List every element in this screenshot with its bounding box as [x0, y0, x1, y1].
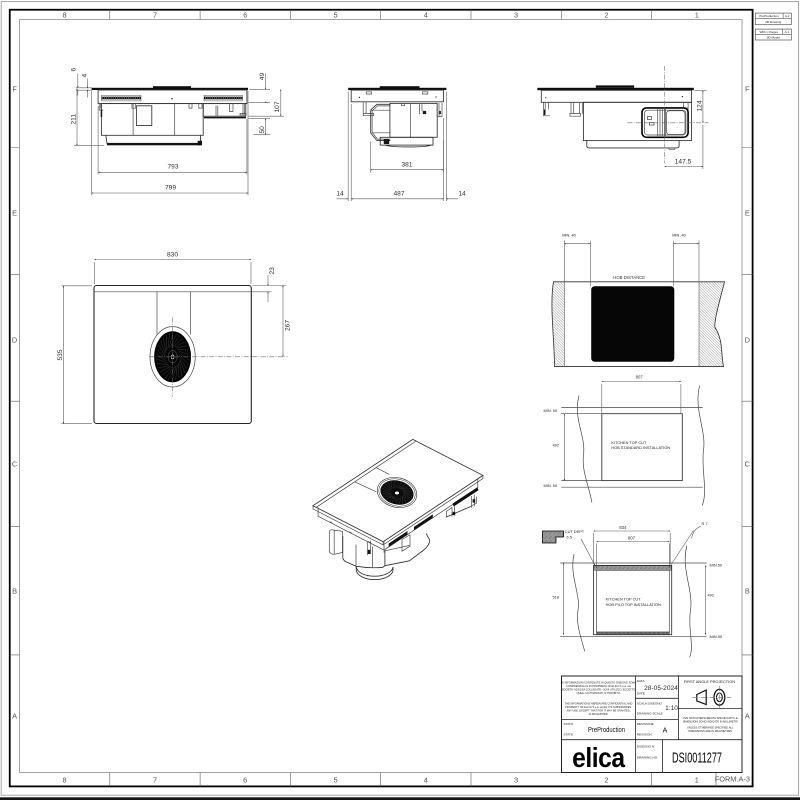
svg-text:DRAWING NO.: DRAWING NO. — [637, 756, 658, 760]
svg-text:LE INFORMAZIONI CONTENUTE IN Q: LE INFORMAZIONI CONTENUTE IN QUESTO DISE… — [561, 681, 637, 685]
svg-text:E: E — [745, 209, 750, 218]
svg-text:MIN. 40: MIN. 40 — [562, 233, 576, 238]
svg-text:CUT DEPT: CUT DEPT — [565, 529, 585, 534]
svg-text:793: 793 — [167, 164, 178, 171]
svg-text:QUELLI AUTORIZZATI, E' PROIBIT: QUELLI AUTORIZZATI, E' PROIBITO. — [576, 691, 620, 695]
svg-text:With n Pages: With n Pages — [760, 30, 779, 34]
svg-text:A: A — [745, 712, 750, 721]
svg-text:28-05-2024: 28-05-2024 — [644, 685, 678, 692]
svg-text:4: 4 — [424, 11, 428, 20]
svg-text:PreProduction: PreProduction — [588, 725, 625, 734]
svg-text:DATE: DATE — [637, 692, 645, 696]
svg-text:124: 124 — [696, 100, 703, 111]
svg-text:UNLESS OTHERWISE SPECIFIED ALL: UNLESS OTHERWISE SPECIFIED ALL — [687, 725, 734, 729]
svg-text:5: 5 — [333, 775, 337, 784]
svg-text:FIRST ANGLE PROJECTION: FIRST ANGLE PROJECTION — [684, 679, 736, 684]
svg-text:REVISION: REVISION — [637, 733, 652, 737]
svg-text:492: 492 — [708, 593, 715, 598]
svg-text:8: 8 — [63, 775, 67, 784]
svg-text:DIMENSIONI SONO INDICATE IN MI: DIMENSIONI SONO INDICATE IN MILLIMETRI — [683, 719, 738, 723]
svg-text:518: 518 — [553, 595, 560, 600]
svg-text:DRAWING SCALE: DRAWING SCALE — [637, 711, 663, 715]
svg-text:HOB STANDARD INSTALLATION: HOB STANDARD INSTALLATION — [611, 445, 670, 450]
svg-text:50: 50 — [259, 126, 266, 134]
svg-text:6: 6 — [71, 68, 78, 72]
svg-text:D: D — [745, 336, 750, 345]
svg-text:4: 4 — [424, 775, 428, 784]
svg-text:830: 830 — [167, 252, 178, 259]
svg-text:3: 3 — [514, 11, 518, 20]
svg-text:6: 6 — [243, 775, 247, 784]
svg-text:PROPERTY OF ELICA S.p.A. and/o: PROPERTY OF ELICA S.p.A. and/or ITS SUBS… — [565, 705, 632, 709]
svg-text:ANY USE, EXCEPT THAT FOR IT MA: ANY USE, EXCEPT THAT FOR IT MAY BE GRANT… — [567, 709, 631, 713]
svg-text:799: 799 — [165, 184, 176, 191]
svg-text:3D Model: 3D Model — [767, 36, 781, 40]
svg-text:KITCHEN TOP CUT: KITCHEN TOP CUT — [606, 597, 642, 602]
svg-text:4: 4 — [82, 74, 89, 78]
svg-text:A: A — [663, 725, 668, 734]
svg-text:C: C — [12, 460, 18, 469]
svg-text:14: 14 — [458, 190, 466, 197]
svg-text:F: F — [745, 84, 750, 93]
svg-text:DSI0011277: DSI0011277 — [672, 751, 722, 767]
svg-text:MIN. 40: MIN. 40 — [672, 233, 686, 238]
svg-text:8: 8 — [63, 11, 67, 20]
svg-text:14: 14 — [336, 190, 344, 197]
svg-text:R 7: R 7 — [702, 521, 708, 526]
svg-text:DIMENSIONS ARE IN MILLIMETRES: DIMENSIONS ARE IN MILLIMETRES — [688, 729, 732, 733]
svg-text:7: 7 — [153, 11, 157, 20]
svg-text:267: 267 — [284, 320, 291, 331]
svg-text:7: 7 — [153, 775, 157, 784]
svg-text:49: 49 — [259, 73, 266, 81]
svg-text:147.5: 147.5 — [675, 158, 692, 165]
svg-text:1: 1 — [695, 775, 699, 784]
svg-text:HOB FILO TOP INSTALLATION: HOB FILO TOP INSTALLATION — [606, 602, 661, 607]
svg-text:MIN.50: MIN.50 — [710, 634, 723, 639]
svg-text:2D Drawing: 2D Drawing — [765, 20, 781, 24]
svg-text:MIN. 50: MIN. 50 — [544, 408, 558, 413]
svg-text:A: A — [12, 712, 17, 721]
svg-text:CONFIDENZIALI E DI PROPRIETA': CONFIDENZIALI E DI PROPRIETA' DI ELICA S… — [566, 684, 632, 688]
svg-text:492: 492 — [553, 442, 560, 447]
svg-text:HOB DISTANCE: HOB DISTANCE — [613, 275, 645, 280]
svg-text:487: 487 — [393, 190, 404, 197]
svg-text:STATE: STATE — [564, 733, 574, 737]
svg-text:A.2: A.2 — [785, 14, 790, 18]
svg-text:6: 6 — [243, 11, 247, 20]
svg-text:F: F — [12, 84, 17, 93]
svg-text:6.5: 6.5 — [567, 534, 572, 539]
svg-text:STATO: STATO — [564, 722, 574, 726]
svg-text:D: D — [12, 336, 17, 345]
svg-text:23: 23 — [269, 267, 276, 275]
svg-text:B: B — [745, 587, 750, 596]
svg-text:elica: elica — [572, 742, 625, 773]
svg-text:107: 107 — [274, 101, 281, 112]
svg-text:1: 1 — [695, 11, 699, 20]
svg-text:211: 211 — [70, 114, 77, 125]
svg-text:C: C — [745, 460, 751, 469]
svg-text:DATA: DATA — [637, 679, 646, 683]
svg-text:IS PROHIBITED.: IS PROHIBITED. — [589, 712, 609, 716]
svg-text:OVE NON DIVERSAMENTE SPECIFICA: OVE NON DIVERSAMENTE SPECIFICATO LE — [683, 716, 738, 720]
svg-text:REVISIONE: REVISIONE — [637, 722, 654, 726]
svg-text:381: 381 — [401, 162, 412, 169]
svg-text:E: E — [12, 209, 17, 218]
svg-text:SCALA DISEGNO: SCALA DISEGNO — [637, 701, 663, 705]
svg-text:2: 2 — [604, 11, 608, 20]
svg-text:834: 834 — [619, 525, 627, 530]
svg-text:DISEGNO N.: DISEGNO N. — [637, 745, 655, 749]
svg-text:807: 807 — [628, 535, 636, 540]
svg-text:THE INFORMATIONS HEREIN ARE CO: THE INFORMATIONS HEREIN ARE CONFIDENTIAL… — [565, 702, 633, 706]
svg-text:535: 535 — [57, 349, 64, 360]
svg-text:807: 807 — [636, 374, 644, 379]
svg-text:1:10: 1:10 — [665, 705, 678, 712]
svg-text:5: 5 — [333, 11, 337, 20]
svg-text:A.1: A.1 — [785, 30, 790, 34]
svg-text:PreProduction: PreProduction — [759, 14, 779, 18]
svg-text:B: B — [12, 587, 17, 596]
svg-text:SOCIETA' AD ESSA COLLEGATE. OG: SOCIETA' AD ESSA COLLEGATE. OGNI UTILIZZ… — [562, 688, 636, 692]
svg-text:MIN. 50: MIN. 50 — [544, 483, 558, 488]
svg-text:FORM.A-3: FORM.A-3 — [715, 774, 750, 783]
svg-text:2: 2 — [604, 775, 608, 784]
svg-text:MIN.50: MIN.50 — [710, 563, 723, 568]
svg-text:3: 3 — [514, 775, 518, 784]
